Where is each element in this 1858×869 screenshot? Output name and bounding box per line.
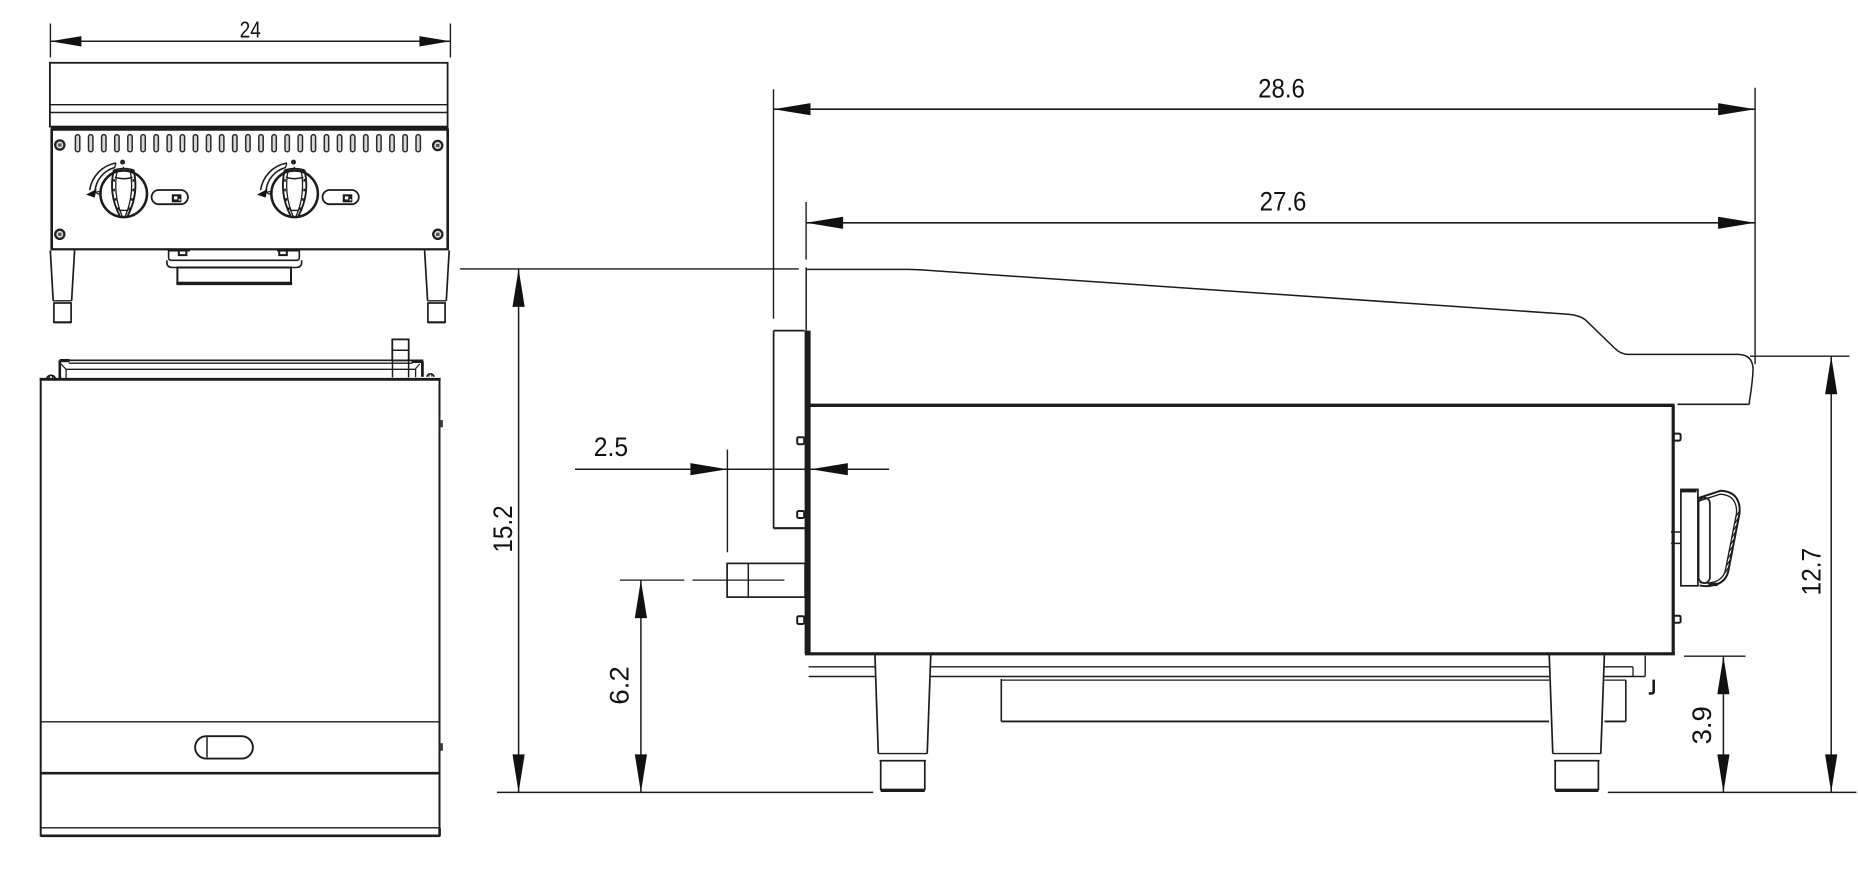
- svg-text:24: 24: [240, 16, 261, 42]
- svg-text:3.9: 3.9: [1687, 706, 1717, 744]
- svg-text:15.2: 15.2: [488, 505, 518, 552]
- svg-text:28.6: 28.6: [1258, 73, 1305, 103]
- svg-text:6.2: 6.2: [605, 666, 635, 705]
- svg-text:2.5: 2.5: [594, 432, 628, 462]
- svg-text:12.7: 12.7: [1796, 548, 1826, 596]
- svg-text:27.6: 27.6: [1260, 187, 1307, 217]
